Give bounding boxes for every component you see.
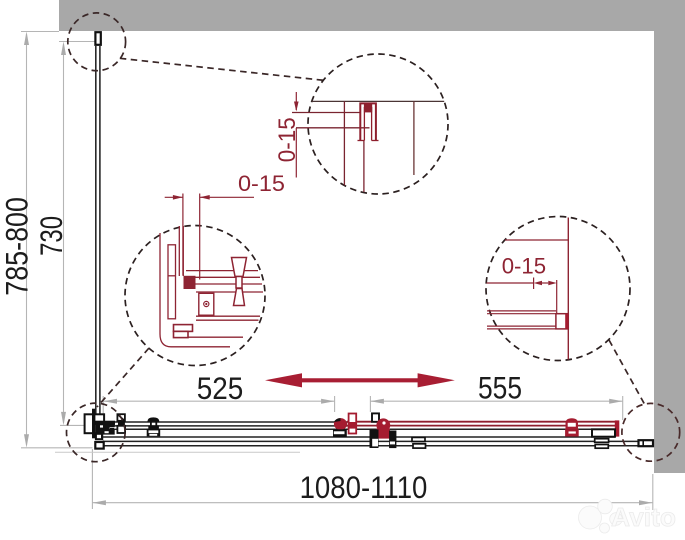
svg-text:785-800: 785-800 — [0, 197, 35, 296]
svg-text:730: 730 — [33, 216, 69, 256]
svg-text:1080-1110: 1080-1110 — [300, 469, 428, 505]
svg-text:0-15: 0-15 — [502, 253, 546, 278]
svg-text:525: 525 — [197, 370, 244, 406]
svg-text:0-15: 0-15 — [274, 117, 301, 162]
svg-text:Avito: Avito — [611, 502, 676, 532]
svg-text:0-15: 0-15 — [238, 171, 285, 196]
svg-text:555: 555 — [478, 370, 522, 406]
